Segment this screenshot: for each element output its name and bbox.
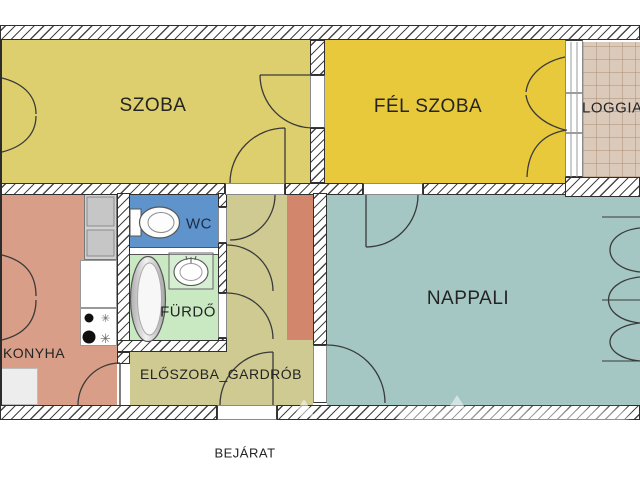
label-loggia: LOGGIA (582, 100, 640, 117)
burner-glyph-large: ✳ (100, 332, 111, 347)
window-frame-lines-right (602, 217, 640, 361)
plan-linework: ✳ ✳ (0, 0, 640, 480)
door-arc-furdo (227, 293, 273, 339)
bathtub-icon (131, 257, 166, 342)
door-arc-nappali-top (366, 195, 418, 247)
door-arc-nappali-west (327, 345, 385, 403)
toilet-icon (130, 207, 180, 238)
label-fel-szoba: FÉL SZOBA (374, 96, 482, 118)
door-arc-corridor-top (230, 195, 275, 240)
fridge-doors-icon (87, 197, 114, 256)
door-arc-konyha (78, 363, 120, 405)
window-konyha-left (2, 255, 36, 340)
window-nappali-right (609, 228, 640, 361)
floorplan: ✳ ✳ SZOBA FÉL SZOBA LOGGIA KONYHA WC FÜR… (0, 0, 640, 480)
window-szoba-left (2, 78, 36, 152)
sink-icon (169, 253, 213, 289)
label-wc: WC (186, 216, 212, 233)
door-arc-szoba-lower (230, 128, 285, 183)
label-szoba: SZOBA (120, 95, 187, 117)
window-sash-dividers (566, 93, 582, 133)
burner-glyph-small: ✳ (101, 312, 110, 325)
door-arcs (78, 75, 418, 405)
label-furdo: FÜRDŐ (160, 304, 216, 321)
window-strip-lines (571, 42, 577, 177)
entrance-label: BEJÁRAT (214, 446, 275, 461)
door-arc-wc (227, 245, 273, 291)
window-fel-loggia (526, 57, 567, 177)
label-konyha: KONYHA (3, 345, 65, 361)
label-nappali: NAPPALI (427, 288, 509, 310)
stove-burners-icon: ✳ ✳ (83, 312, 112, 347)
label-eloszoba: ELŐSZOBA_GARDRÓB (140, 366, 302, 382)
door-arc-szoba-upper (260, 75, 313, 128)
